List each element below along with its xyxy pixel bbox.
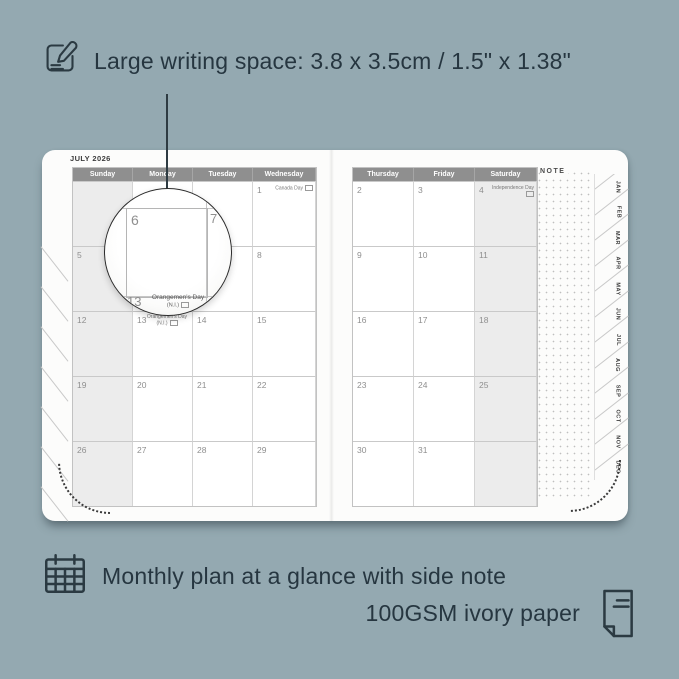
magnifier-circle: 6 7 13 Orangemen's Day (N.I.) <box>104 188 232 316</box>
day-number: 16 <box>357 315 366 325</box>
day-number: 30 <box>357 445 366 455</box>
callout-connector-line <box>166 94 168 192</box>
day-cell: 17 <box>414 311 475 376</box>
paper-icon <box>594 586 640 642</box>
flag-tag <box>170 320 178 326</box>
flag-tag <box>181 302 189 308</box>
month-tab: JUN <box>595 302 629 328</box>
day-number: 15 <box>257 315 266 325</box>
day-cell: 30 <box>353 441 414 506</box>
calendar-grid-icon <box>40 548 90 598</box>
day-cell: 19 <box>73 376 133 441</box>
day-number: 8 <box>257 250 262 260</box>
note-label: NOTE <box>540 168 568 175</box>
day-cell: 10 <box>414 246 475 311</box>
day-number: 9 <box>357 250 362 260</box>
weekday-header: Tuesday <box>193 168 253 181</box>
day-cell: 21 <box>193 376 253 441</box>
month-tab-label: NOV <box>614 435 620 448</box>
edge-cut-mark <box>41 286 69 321</box>
day-number: 25 <box>479 380 488 390</box>
flag-tag <box>305 185 313 191</box>
day-number: 3 <box>418 185 423 195</box>
day-cell: 8 <box>253 246 316 311</box>
day-cell: 31 <box>414 441 475 506</box>
flag-tag <box>526 191 534 197</box>
day-cell: 24 <box>414 376 475 441</box>
day-number: 14 <box>197 315 206 325</box>
day-cell: 22 <box>253 376 316 441</box>
day-number: 11 <box>479 250 488 260</box>
corner-stitch-right <box>569 460 631 518</box>
bottom-annotation-line2: 100GSM ivory paper <box>250 600 580 627</box>
holiday-label: Canada Day <box>267 185 313 191</box>
magnified-adjacent-day: 7 <box>210 211 217 226</box>
weekday-header: Friday <box>414 168 475 181</box>
weekday-header: Wednesday <box>253 168 316 181</box>
day-number: 28 <box>197 445 206 455</box>
day-cell: 14 <box>193 311 253 376</box>
corner-stitch-left <box>48 462 110 520</box>
day-number: 21 <box>197 380 206 390</box>
day-cell: 11 <box>475 246 537 311</box>
day-cell: 12 <box>73 311 133 376</box>
month-tab: MAY <box>595 276 629 302</box>
month-tab: MAR <box>595 225 629 251</box>
day-number: 17 <box>418 315 427 325</box>
day-number: 1 <box>257 185 262 195</box>
edge-cut-mark <box>41 326 69 361</box>
weekday-header: Monday <box>133 168 193 181</box>
weekday-header: Saturday <box>475 168 537 181</box>
month-tab: SEP <box>595 378 629 404</box>
month-tab: OCT <box>595 404 629 430</box>
day-cell <box>475 441 537 506</box>
day-number: 19 <box>77 380 86 390</box>
month-tab: APR <box>595 251 629 277</box>
day-cell: 25 <box>475 376 537 441</box>
month-tab: JUL <box>595 327 629 353</box>
day-cell: 15 <box>253 311 316 376</box>
month-tab-label: JUL <box>615 334 621 346</box>
day-number: 31 <box>418 445 427 455</box>
product-image: Large writing space: 3.8 x 3.5cm / 1.5" … <box>0 0 679 679</box>
day-cell: 20 <box>133 376 193 441</box>
month-tab-strip: JANFEBMARAPRMAYJUNJULAUGSEPOCTNOVDEC <box>594 174 629 480</box>
day-cell: 3 <box>414 181 475 246</box>
day-number: 4 <box>479 185 484 195</box>
month-tab-label: MAR <box>614 231 620 245</box>
pencil-note-icon <box>38 34 84 80</box>
day-number: 5 <box>77 250 82 260</box>
day-number: 27 <box>137 445 146 455</box>
month-tab-label: APR <box>614 257 620 270</box>
top-annotation-text: Large writing space: 3.8 x 3.5cm / 1.5" … <box>94 48 571 75</box>
month-tab-label: JAN <box>615 180 621 193</box>
day-number: 10 <box>418 250 427 260</box>
day-cell: 28 <box>193 441 253 506</box>
month-tab-label: AUG <box>614 358 620 372</box>
day-cell: 27 <box>133 441 193 506</box>
day-number: 20 <box>137 380 146 390</box>
edge-cut-mark <box>41 366 69 401</box>
magnified-below-day: 13 <box>127 294 141 309</box>
day-cell: 16 <box>353 311 414 376</box>
day-number: 22 <box>257 380 266 390</box>
month-tab-label: MAY <box>614 282 620 295</box>
day-cell: 13Orangemen's Day(N.I.) <box>133 311 193 376</box>
day-cell: 23 <box>353 376 414 441</box>
day-cell: 18 <box>475 311 537 376</box>
book-spine <box>329 150 334 521</box>
day-number: 12 <box>77 315 86 325</box>
weekday-header: Sunday <box>73 168 133 181</box>
month-tab-label: SEP <box>615 384 621 397</box>
month-tab: NOV <box>595 429 629 455</box>
weekday-header: Thursday <box>353 168 414 181</box>
month-title: JULY 2026 <box>70 154 111 163</box>
edge-cut-mark <box>41 406 69 441</box>
month-tab-label: FEB <box>615 206 621 219</box>
day-cell: 4Independence Day <box>475 181 537 246</box>
holiday-label: Independence Day <box>488 185 534 197</box>
month-tab-label: JUN <box>615 308 621 321</box>
day-number: 2 <box>357 185 362 195</box>
month-tab: FEB <box>595 200 629 226</box>
day-number: 23 <box>357 380 366 390</box>
month-tab: JAN <box>595 174 629 200</box>
day-cell: 9 <box>353 246 414 311</box>
month-tab-label: OCT <box>614 410 620 423</box>
day-cell: 1Canada Day <box>253 181 316 246</box>
day-number: 24 <box>418 380 427 390</box>
bottom-annotation-line1: Monthly plan at a glance with side note <box>102 563 506 590</box>
day-cell: 2 <box>353 181 414 246</box>
day-cell: 29 <box>253 441 316 506</box>
edge-cut-mark <box>41 246 69 281</box>
magnified-holiday: Orangemen's Day (N.I.) <box>143 294 213 309</box>
day-number: 26 <box>77 445 86 455</box>
day-number: 18 <box>479 315 488 325</box>
calendar-grid-right: ThursdayFridaySaturday234Independence Da… <box>352 167 538 507</box>
magnified-day-number: 6 <box>131 212 139 228</box>
day-number: 29 <box>257 445 266 455</box>
note-dot-grid <box>536 170 594 500</box>
month-tab: AUG <box>595 353 629 379</box>
